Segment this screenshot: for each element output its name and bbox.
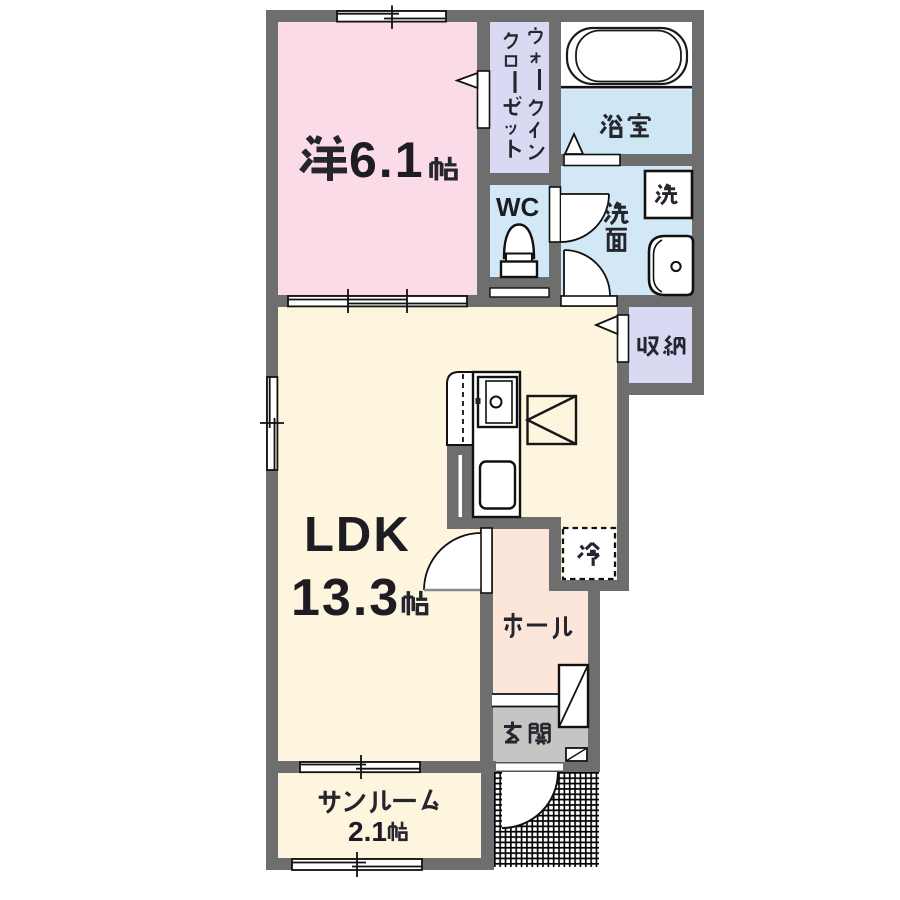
svg-text:WC: WC xyxy=(496,192,540,222)
svg-text:LDK: LDK xyxy=(304,508,411,562)
svg-text:6.1: 6.1 xyxy=(349,132,425,188)
svg-text:13.3: 13.3 xyxy=(291,569,400,627)
svg-text:2.1: 2.1 xyxy=(348,816,387,847)
